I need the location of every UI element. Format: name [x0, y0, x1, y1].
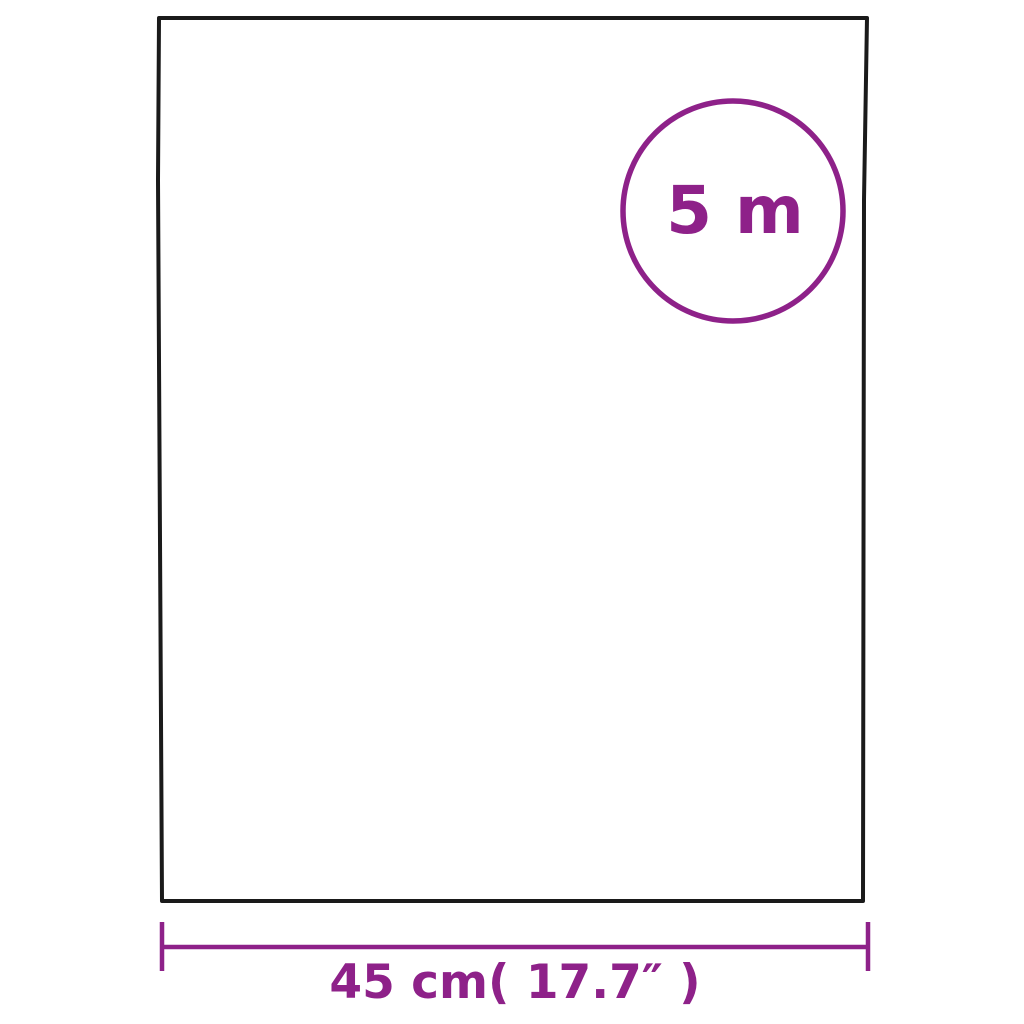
product-dimension-diagram: 5 m 45 cm( 17.7″ ): [0, 0, 1024, 1024]
length-badge-label: 5 m: [666, 172, 804, 249]
length-badge: 5 m: [623, 101, 843, 321]
width-dimension-label: 45 cm( 17.7″ ): [329, 955, 700, 1010]
product-image-canvas: 5 m 45 cm( 17.7″ ): [0, 0, 1024, 1024]
